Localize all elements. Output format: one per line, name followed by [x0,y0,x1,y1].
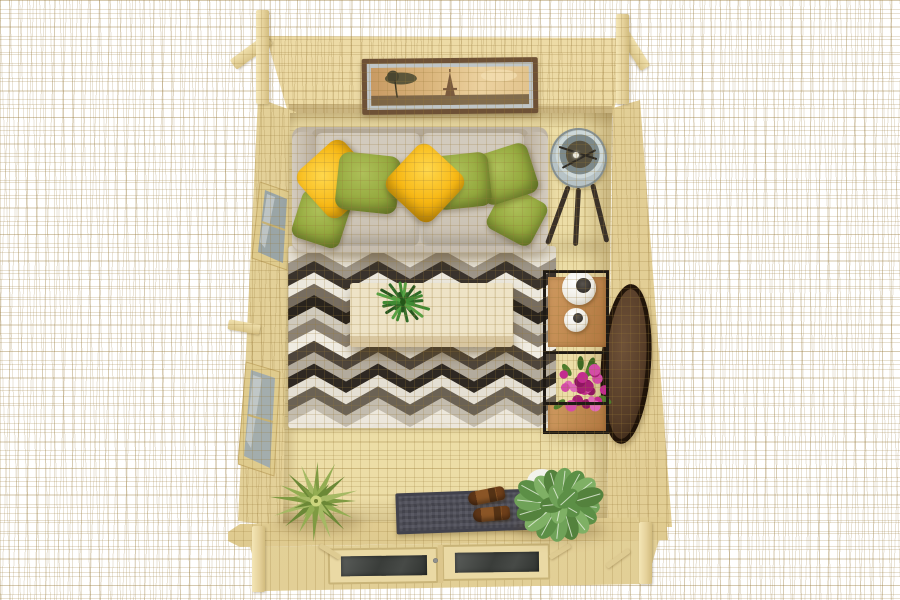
cabin-render [0,0,900,600]
door-left [328,547,438,585]
shoe-strap [488,487,498,502]
door-glass [341,555,427,576]
corner-post-bottom-right [639,522,652,584]
bromeliad-plant [264,447,368,551]
shoe-strap [493,506,501,521]
door-handle [433,558,438,563]
bromeliad-center [314,499,318,503]
fittonia-plant [504,448,616,558]
door-divider [438,545,444,583]
